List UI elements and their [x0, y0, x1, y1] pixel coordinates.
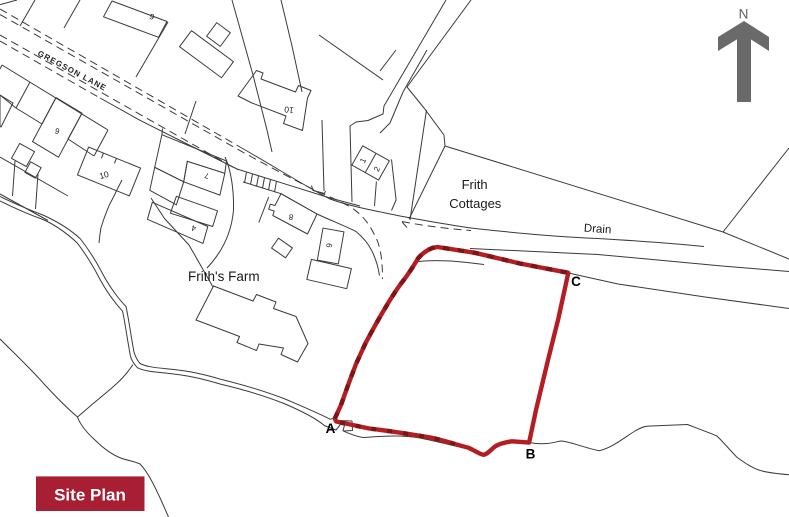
svg-text:Site Plan: Site Plan	[54, 486, 126, 505]
svg-text:A: A	[326, 421, 336, 436]
svg-text:10: 10	[283, 104, 294, 115]
svg-text:B: B	[526, 447, 536, 462]
svg-text:C: C	[571, 274, 581, 289]
svg-text:Drain: Drain	[583, 223, 611, 237]
svg-text:Cottages: Cottages	[449, 196, 502, 211]
svg-text:N: N	[739, 7, 749, 22]
svg-text:Frith's Farm: Frith's Farm	[188, 269, 260, 284]
svg-text:Frith: Frith	[462, 177, 488, 192]
